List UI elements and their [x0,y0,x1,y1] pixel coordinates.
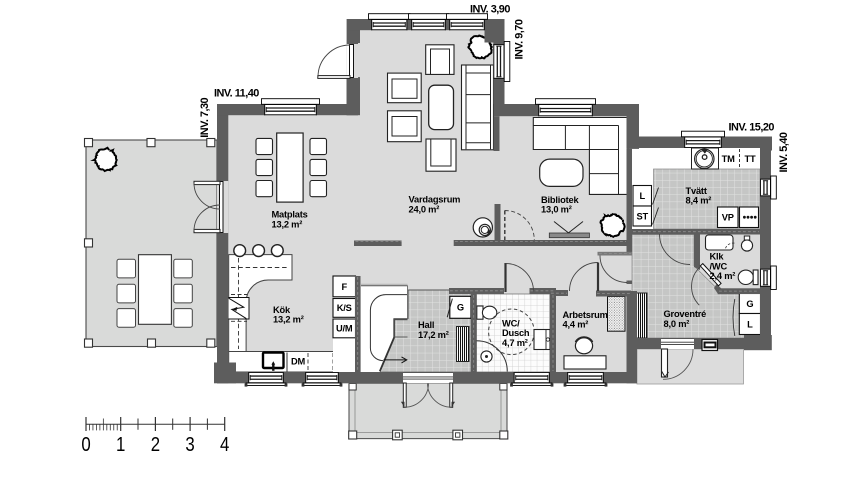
svg-text:Dusch: Dusch [502,328,530,338]
svg-text:3: 3 [185,432,194,455]
svg-text:13,0 m²: 13,0 m² [541,205,572,215]
svg-text:F: F [341,282,347,292]
svg-text:Tvätt: Tvätt [686,186,707,196]
svg-text:13,2 m²: 13,2 m² [272,220,303,230]
svg-text:VP: VP [722,213,734,223]
svg-text:4: 4 [220,432,229,455]
svg-text:L: L [639,191,645,201]
svg-text:TM: TM [722,154,735,164]
svg-text:0: 0 [81,432,90,455]
svg-text:Arbetsrum: Arbetsrum [563,310,608,320]
svg-text:INV. 11,40: INV. 11,40 [214,87,259,99]
svg-text:2,4 m²: 2,4 m² [710,271,736,281]
svg-text:INV. 15,20: INV. 15,20 [729,121,775,133]
svg-text:24,0 m²: 24,0 m² [409,205,440,215]
svg-text:Bibliotek: Bibliotek [541,195,579,205]
svg-text:INV. 7,30: INV. 7,30 [199,97,211,137]
svg-text:4,4 m²: 4,4 m² [563,320,589,330]
svg-text:/WC: /WC [710,261,728,271]
svg-text:Klk: Klk [710,252,725,262]
svg-text:Vardagsrum: Vardagsrum [409,195,461,205]
svg-text:U/M: U/M [336,324,353,334]
svg-text:13,2 m²: 13,2 m² [273,315,304,325]
svg-text:INV. 5,40: INV. 5,40 [778,132,790,172]
svg-text:Kök: Kök [273,305,291,315]
svg-text:INV. 9,70: INV. 9,70 [514,19,526,59]
svg-text:K/S: K/S [337,303,352,313]
svg-text:INV. 3,90: INV. 3,90 [470,4,510,16]
svg-text:WC/: WC/ [502,318,520,328]
svg-text:17,2 m²: 17,2 m² [418,330,449,340]
svg-text:1: 1 [116,432,125,455]
svg-text:Hall: Hall [418,320,434,330]
svg-text:L: L [747,319,753,329]
svg-text:8,4 m²: 8,4 m² [686,196,712,206]
svg-text:2: 2 [151,432,160,455]
svg-text:G: G [746,299,753,309]
svg-text:TT: TT [745,154,756,164]
svg-text:4,7 m²: 4,7 m² [502,338,528,348]
svg-text:ST: ST [636,211,648,221]
svg-text:8,0 m²: 8,0 m² [664,319,690,329]
svg-text:Matplats: Matplats [272,210,308,220]
svg-text:Groventré: Groventré [664,309,707,319]
svg-text:DM: DM [291,356,306,366]
svg-text:G: G [457,303,464,313]
